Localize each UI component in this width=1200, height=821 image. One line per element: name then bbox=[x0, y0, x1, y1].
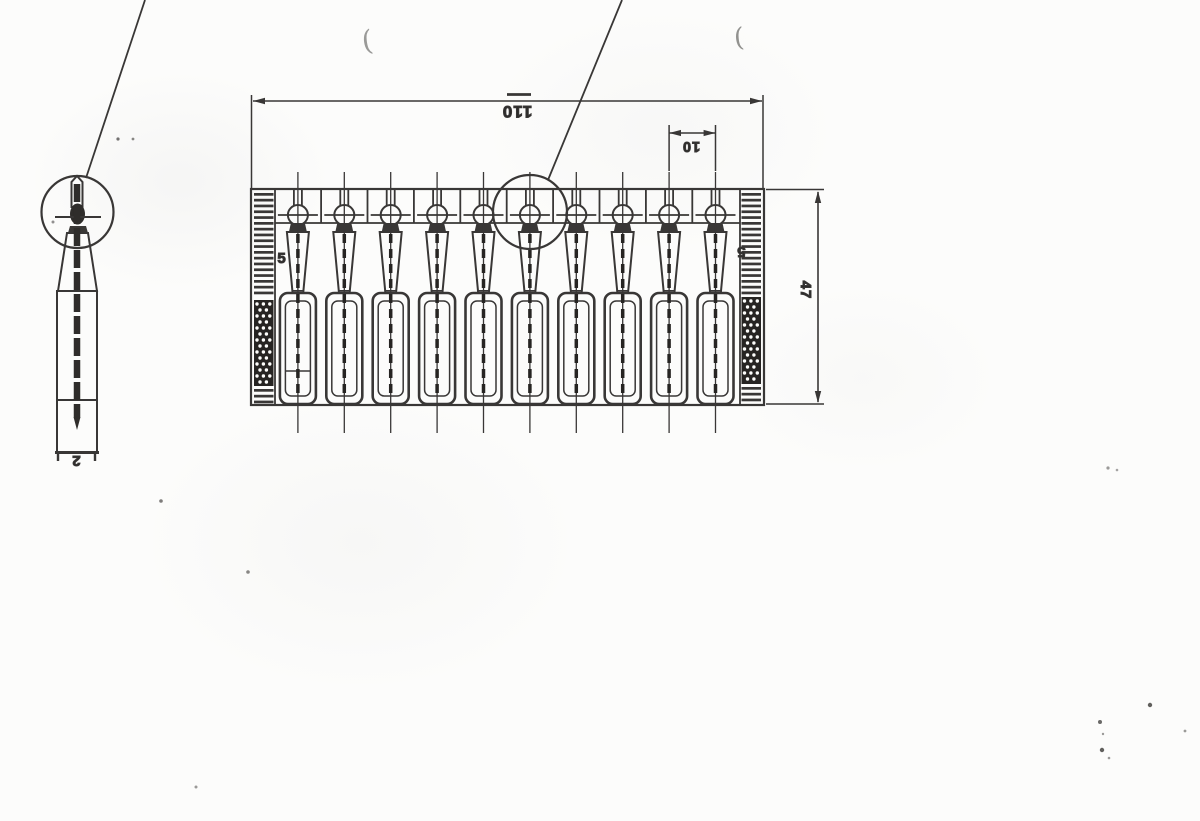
technical-drawing: 2 110 bbox=[0, 0, 1200, 821]
pin bbox=[324, 172, 364, 433]
knurl-dot bbox=[756, 371, 759, 374]
knurl-dot bbox=[743, 323, 746, 326]
arrowhead bbox=[669, 130, 681, 136]
knurl-dot bbox=[756, 323, 759, 326]
knurl-dot bbox=[743, 347, 746, 350]
speck bbox=[1100, 748, 1104, 752]
edge-band-left bbox=[254, 189, 275, 405]
hatch-line bbox=[742, 234, 762, 237]
scan-crescent-left: ( bbox=[360, 23, 375, 57]
hatch-line bbox=[254, 395, 274, 398]
knurl-dot bbox=[743, 311, 746, 314]
edge-band-right bbox=[740, 189, 761, 405]
hatch-line bbox=[254, 280, 274, 283]
dimension-overall-height: 47 bbox=[766, 190, 824, 405]
side-stem-tip bbox=[74, 417, 81, 430]
knurl-dot bbox=[262, 302, 265, 305]
speck bbox=[1106, 466, 1109, 469]
hatch-line bbox=[742, 216, 762, 219]
knurl-dot bbox=[265, 308, 268, 311]
knurl-dot bbox=[752, 305, 755, 308]
knurl-dot bbox=[265, 368, 268, 371]
knurl-dot bbox=[752, 317, 755, 320]
knurl-dot bbox=[262, 350, 265, 353]
knurl-dot bbox=[743, 359, 746, 362]
hatch-line bbox=[742, 399, 762, 402]
hatch-line bbox=[742, 228, 762, 231]
knurl-dot bbox=[268, 314, 271, 317]
hatch-line bbox=[742, 210, 762, 213]
speck bbox=[52, 221, 55, 224]
hatch-line bbox=[254, 239, 274, 242]
hatch-line bbox=[742, 268, 762, 271]
hatch-line bbox=[254, 274, 274, 277]
dim-overall-height-label: 47 bbox=[797, 281, 814, 300]
scan-crescent-right: ( bbox=[733, 23, 746, 54]
edge-band-right-label: 5 bbox=[736, 243, 745, 260]
knurl-dot bbox=[268, 326, 271, 329]
hatch-line bbox=[742, 199, 762, 202]
speck bbox=[1098, 720, 1102, 724]
speck bbox=[195, 786, 198, 789]
knurl-dot bbox=[255, 302, 258, 305]
hatch-line bbox=[254, 205, 274, 208]
dimension-pin-pitch: 10 bbox=[669, 125, 715, 171]
knurl-dot bbox=[262, 338, 265, 341]
pin bbox=[417, 172, 457, 433]
knurl-dot bbox=[262, 374, 265, 377]
knurl-dot bbox=[749, 299, 752, 302]
knurl-dot bbox=[258, 308, 261, 311]
knurl-dot bbox=[743, 299, 746, 302]
knurl-dot bbox=[262, 326, 265, 329]
knurl-dot bbox=[743, 371, 746, 374]
knurl-dot bbox=[746, 305, 749, 308]
knurl-dot bbox=[255, 350, 258, 353]
hatch-line bbox=[742, 387, 762, 390]
knurl-dot bbox=[756, 335, 759, 338]
speck bbox=[116, 137, 119, 140]
hatch-line bbox=[254, 210, 274, 213]
dim-thickness-label: 2 bbox=[71, 452, 80, 469]
knurl-dot bbox=[749, 311, 752, 314]
hatch-line bbox=[254, 216, 274, 219]
hatch-line bbox=[742, 292, 762, 295]
hatch-line bbox=[742, 393, 762, 396]
knurl-dot bbox=[262, 362, 265, 365]
knurl-dot bbox=[262, 314, 265, 317]
leader-line-left bbox=[86, 0, 145, 178]
arrowhead bbox=[750, 98, 762, 104]
speck bbox=[1108, 757, 1111, 760]
knurl-band bbox=[742, 297, 762, 384]
knurl-dot bbox=[746, 365, 749, 368]
hatch-line bbox=[742, 286, 762, 289]
hatch-line bbox=[254, 228, 274, 231]
hatch-line bbox=[742, 222, 762, 225]
knurl-dot bbox=[756, 347, 759, 350]
side-view: 2 bbox=[42, 0, 146, 469]
knurl-dot bbox=[258, 344, 261, 347]
knurl-dot bbox=[268, 302, 271, 305]
pin bbox=[649, 172, 689, 433]
pin bbox=[556, 172, 596, 433]
dim-overall-width-label: 110 bbox=[502, 102, 532, 121]
knurl-dot bbox=[258, 332, 261, 335]
knurl-dot bbox=[258, 368, 261, 371]
knurl-dot bbox=[255, 326, 258, 329]
hatch-line bbox=[254, 251, 274, 254]
scanned-drawing-page: 2 110 bbox=[0, 0, 1200, 821]
knurl-dot bbox=[743, 335, 746, 338]
knurl-dot bbox=[749, 335, 752, 338]
pin bbox=[464, 172, 504, 433]
hatch-line bbox=[254, 401, 274, 404]
knurl-dot bbox=[749, 371, 752, 374]
hatch-line bbox=[254, 234, 274, 237]
knurl-band bbox=[254, 300, 274, 386]
knurl-dot bbox=[749, 323, 752, 326]
knurl-dot bbox=[268, 374, 271, 377]
knurl-dot bbox=[265, 380, 268, 383]
knurl-dot bbox=[258, 320, 261, 323]
hatch-line bbox=[742, 193, 762, 196]
hatch-line bbox=[742, 239, 762, 242]
knurl-dot bbox=[255, 338, 258, 341]
knurl-dot bbox=[265, 344, 268, 347]
knurl-dot bbox=[746, 353, 749, 356]
hatch-line bbox=[742, 263, 762, 266]
hatch-line bbox=[254, 268, 274, 271]
knurl-dot bbox=[746, 341, 749, 344]
arrowhead bbox=[815, 191, 821, 203]
hatch-line bbox=[254, 257, 274, 260]
knurl-dot bbox=[265, 356, 268, 359]
knurl-dot bbox=[255, 362, 258, 365]
leader-line-main bbox=[548, 0, 622, 180]
knurl-dot bbox=[752, 353, 755, 356]
knurl-dot bbox=[756, 359, 759, 362]
knurl-dot bbox=[746, 377, 749, 380]
speck bbox=[1102, 733, 1104, 735]
hatch-line bbox=[254, 263, 274, 266]
knurl-dot bbox=[746, 329, 749, 332]
speck bbox=[246, 570, 250, 574]
knurl-dot bbox=[258, 356, 261, 359]
pin bbox=[371, 172, 411, 433]
arrowhead bbox=[815, 391, 821, 403]
hatch-line bbox=[742, 274, 762, 277]
dim-pin-pitch-label: 10 bbox=[682, 138, 700, 154]
speck bbox=[1184, 730, 1187, 733]
knurl-dot bbox=[255, 374, 258, 377]
knurl-dot bbox=[749, 347, 752, 350]
hatch-line bbox=[742, 280, 762, 283]
knurl-dot bbox=[258, 380, 261, 383]
knurl-dot bbox=[752, 329, 755, 332]
hatch-line bbox=[254, 389, 274, 392]
knurl-dot bbox=[268, 338, 271, 341]
edge-band-left-label: 5 bbox=[277, 250, 286, 267]
hatch-line bbox=[742, 205, 762, 208]
knurl-dot bbox=[752, 365, 755, 368]
speck bbox=[132, 138, 135, 141]
hatch-line bbox=[254, 286, 274, 289]
hatch-line bbox=[254, 292, 274, 295]
knurl-dot bbox=[265, 320, 268, 323]
knurl-dot bbox=[756, 299, 759, 302]
speck bbox=[159, 499, 163, 503]
front-view: 110 10 47 5 5 bbox=[251, 0, 824, 433]
pin bbox=[510, 172, 550, 433]
hatch-line bbox=[254, 193, 274, 196]
hatch-line bbox=[254, 245, 274, 248]
hatch-line bbox=[254, 222, 274, 225]
pin bbox=[278, 172, 318, 433]
arrowhead bbox=[253, 98, 265, 104]
knurl-dot bbox=[752, 341, 755, 344]
knurl-dot bbox=[752, 377, 755, 380]
speck bbox=[1116, 469, 1119, 472]
hatch-line bbox=[254, 199, 274, 202]
knurl-dot bbox=[749, 359, 752, 362]
knurl-dot bbox=[255, 314, 258, 317]
pin bbox=[696, 172, 736, 433]
knurl-dot bbox=[265, 332, 268, 335]
pin bbox=[603, 172, 643, 433]
knurl-dot bbox=[756, 311, 759, 314]
speck bbox=[1148, 703, 1152, 707]
arrowhead bbox=[704, 130, 716, 136]
knurl-dot bbox=[268, 362, 271, 365]
knurl-dot bbox=[746, 317, 749, 320]
knurl-dot bbox=[268, 350, 271, 353]
